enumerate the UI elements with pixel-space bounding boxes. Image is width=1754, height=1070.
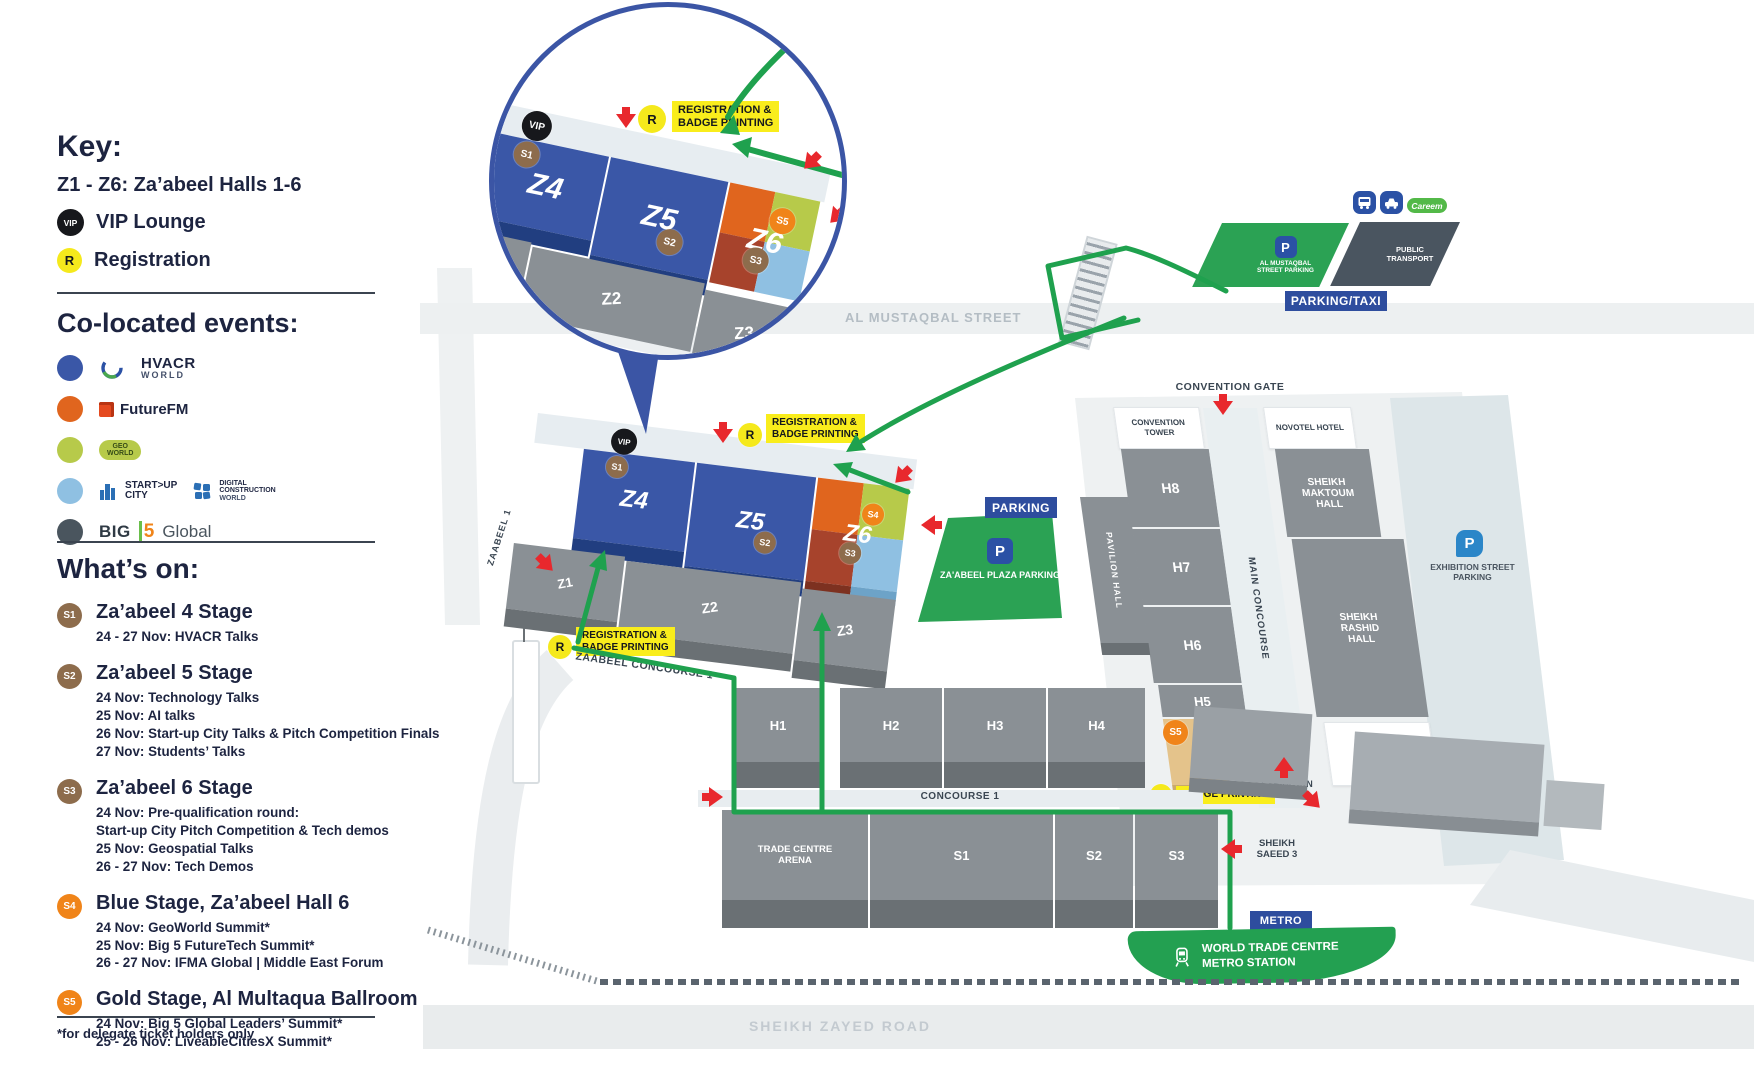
sheikh-zayed-road-label: SHEIKH ZAYED ROAD	[710, 1018, 970, 1035]
monument	[512, 640, 540, 784]
hall-h3-label: H3	[987, 718, 1004, 733]
hall-front	[1101, 643, 1151, 655]
hall-front	[1055, 900, 1133, 928]
registration-label-line1: REGISTRATION &	[772, 417, 859, 429]
inset-hall-z6: Z6	[709, 182, 820, 301]
zoom-inset: Z4 Z5 Z6 Z1 Z2 Z3 VIP S1 S2 S5 S3 R REGI…	[489, 2, 847, 360]
registration-label-line2: BADGE PRINTING	[678, 117, 773, 130]
train-icon	[1172, 946, 1192, 968]
hall-s2: S2	[1055, 810, 1133, 900]
bus-icon	[1353, 191, 1376, 214]
hall-z4: Z4	[573, 449, 695, 552]
inset-registration-label: REGISTRATION & BADGE PRINTING	[672, 101, 779, 132]
hall-front	[944, 762, 1046, 788]
registration-point: R	[738, 423, 762, 447]
metro-label: METRO	[1250, 911, 1312, 930]
metro-station-label: WORLD TRADE CENTRE METRO STATION	[1202, 939, 1352, 971]
sheikh-rashid-hall: SHEIKH RASHID HALL	[1292, 539, 1429, 717]
hall-s2-label: S2	[1086, 848, 1102, 863]
public-transport-label: PUBLIC TRANSPORT	[1383, 245, 1438, 263]
hall-z6: Z6	[805, 478, 909, 592]
parking-label: PARKING	[985, 497, 1057, 518]
inset-hall-z2-label: Z2	[601, 289, 622, 310]
sheikh-saeed-3-label: SHEIKH SAEED 3	[1246, 838, 1308, 861]
hall-h6-label: H6	[1182, 637, 1202, 653]
hall-h7-label: H7	[1171, 559, 1191, 575]
hall-z1: Z1	[506, 543, 625, 622]
monument-flagpole	[523, 618, 525, 642]
registration-label-line1: REGISTRATION &	[678, 104, 773, 117]
hall-front	[870, 900, 1053, 928]
building-block	[1190, 706, 1313, 786]
al-mustaqbal-street-label: AL MUSTAQBAL STREET	[845, 310, 1021, 326]
hall-h3: H3	[944, 688, 1046, 762]
registration-point: R	[548, 635, 572, 659]
trade-centre-arena: TRADE CENTRE ARENA	[722, 810, 868, 900]
pavilion-hall-label: PAVILION HALL	[1104, 532, 1125, 609]
stage-s5-map-badge: S5	[1163, 720, 1188, 745]
sheikh-zayed-road	[423, 1005, 1754, 1049]
hall-z3-label: Z3	[836, 621, 854, 639]
hall-s3-label: S3	[1169, 848, 1185, 863]
registration-label: REGISTRATION & BADGE PRINTING	[766, 414, 865, 443]
al-mustaqbal-parking-label: AL MUSTAQBAL STREET PARKING	[1251, 260, 1321, 274]
parking-taxi-label: PARKING/TAXI	[1285, 291, 1387, 311]
taxi-icon	[1380, 191, 1403, 214]
hall-h2: H2	[840, 688, 942, 762]
hall-front	[722, 900, 868, 928]
hall-h4-label: H4	[1088, 718, 1105, 733]
hall-h8: H8	[1121, 449, 1220, 527]
novotel-hotel: NOVOTEL HOTEL	[1263, 407, 1357, 449]
hall-h6: H6	[1143, 607, 1242, 683]
hall-s1: S1	[870, 810, 1053, 900]
hall-h8-label: H8	[1160, 480, 1180, 496]
hall-s1-label: S1	[954, 848, 970, 863]
hall-z5: Z5	[684, 463, 816, 581]
hall-front	[1048, 762, 1145, 788]
exhibition-parking-p-icon: P	[1456, 530, 1483, 557]
hall-z3: Z3	[794, 589, 896, 672]
hall-z4-label: Z4	[618, 485, 649, 516]
inset-hall-z3: Z3	[691, 290, 797, 360]
main-concourse-label: MAIN CONCOURSE	[1245, 557, 1270, 660]
careem-logo: Careem	[1407, 198, 1447, 213]
hall-h7: H7	[1132, 529, 1231, 605]
hall-h1-label: H1	[770, 718, 787, 733]
hall-h1: H1	[736, 688, 820, 762]
parking-p-icon: P	[1275, 236, 1297, 258]
building-block	[1350, 731, 1545, 822]
inset-hall-z3-label: Z3	[734, 323, 755, 344]
convention-tower: CONVENTION TOWER	[1113, 407, 1205, 449]
hall-front	[792, 660, 887, 689]
inset-zaabeel-cluster: Z4 Z5 Z6 Z1 Z2 Z3 VIP S1 S2 S5 S3	[489, 92, 840, 360]
hall-front	[736, 762, 820, 788]
inset-hall-z4-label: Z4	[525, 167, 566, 208]
hall-z1-label: Z1	[557, 574, 575, 592]
hall-front	[840, 762, 942, 788]
registration-label-line2: BADGE PRINTING	[772, 429, 859, 441]
zaabeel-plaza-p-icon: P	[987, 538, 1013, 564]
exhibition-street-parking-label: EXHIBITION STREET PARKING	[1420, 562, 1525, 582]
sheikh-maktoum-hall: SHEIKH MAKTOUM HALL	[1275, 449, 1381, 537]
concourse-1-label: CONCOURSE 1	[880, 791, 1040, 803]
hall-z2-label: Z2	[700, 598, 718, 616]
zaabeel-plaza-parking-label: ZA'ABEEL PLAZA PARKING	[940, 570, 1060, 580]
registration-label-line1: REGISTRATION &	[582, 630, 669, 642]
building-block	[1543, 780, 1604, 830]
hall-h2-label: H2	[883, 718, 900, 733]
venue-map-page: Key: Z1 - Z6: Za’abeel Halls 1-6 VIP VIP…	[0, 0, 1754, 1070]
inset-registration-point: R	[638, 105, 666, 133]
hall-s3: S3	[1135, 810, 1218, 900]
hall-h4: H4	[1048, 688, 1145, 762]
hall-front	[1135, 900, 1218, 928]
convention-gate-label: CONVENTION GATE	[1170, 381, 1290, 394]
sheikh-maktoum-hall-label: SHEIKH MAKTOUM HALL	[1294, 477, 1363, 510]
trade-centre-arena-label: TRADE CENTRE ARENA	[755, 844, 835, 866]
sheikh-rashid-hall-label: SHEIKH RASHID HALL	[1330, 612, 1391, 645]
registration-label-line2: BADGE PRINTING	[582, 642, 669, 654]
